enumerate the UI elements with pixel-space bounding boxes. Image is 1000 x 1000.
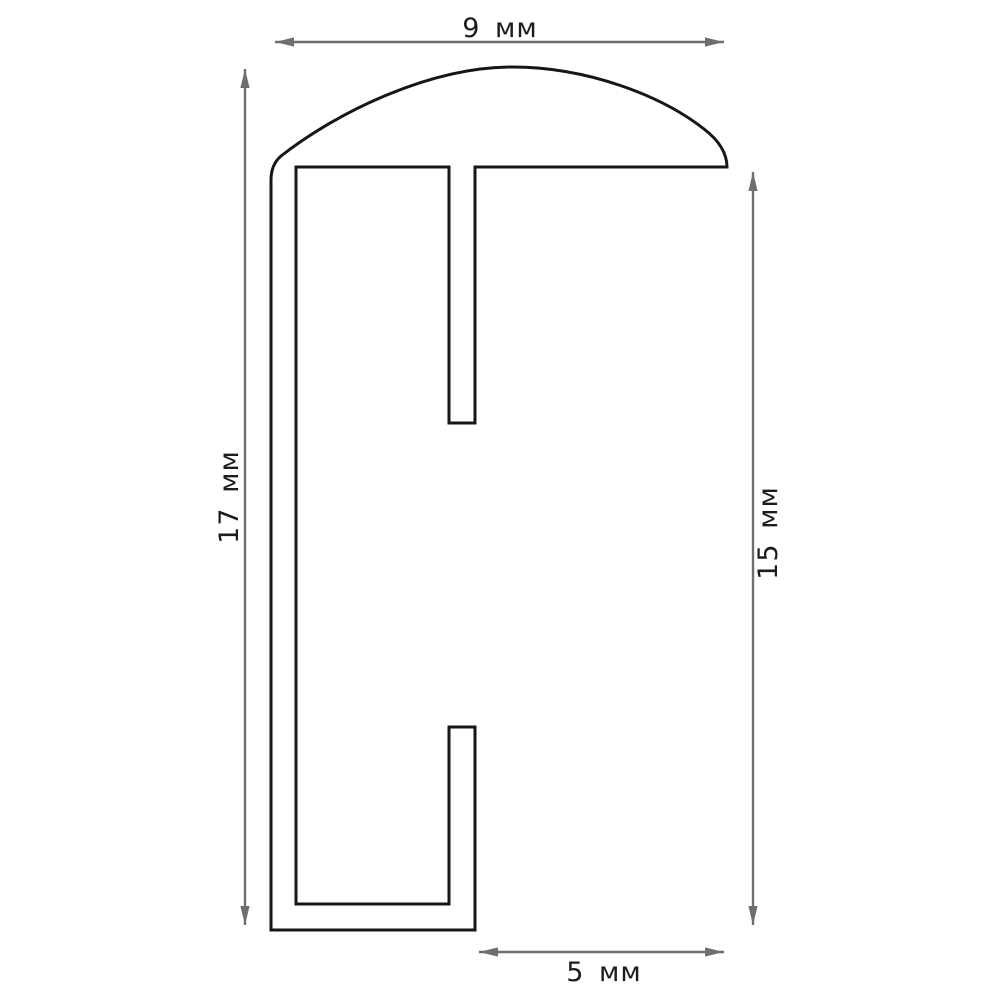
profile-outline xyxy=(271,67,727,930)
dimension-label-left: 17 мм xyxy=(214,450,245,544)
dimension-label-top: 9 мм xyxy=(462,13,538,44)
profile-dimension-drawing: 9 мм 17 мм 15 мм 5 мм xyxy=(0,0,1000,1000)
technical-drawing-canvas: 9 мм 17 мм 15 мм 5 мм xyxy=(0,0,1000,1000)
dimension-right: 15 мм xyxy=(753,172,784,925)
dimension-bottom: 5 мм xyxy=(479,952,724,988)
dimension-left: 17 мм xyxy=(214,69,245,925)
dimension-label-bottom: 5 мм xyxy=(566,957,642,988)
dimension-top: 9 мм xyxy=(275,13,724,44)
dimension-label-right: 15 мм xyxy=(753,486,784,580)
